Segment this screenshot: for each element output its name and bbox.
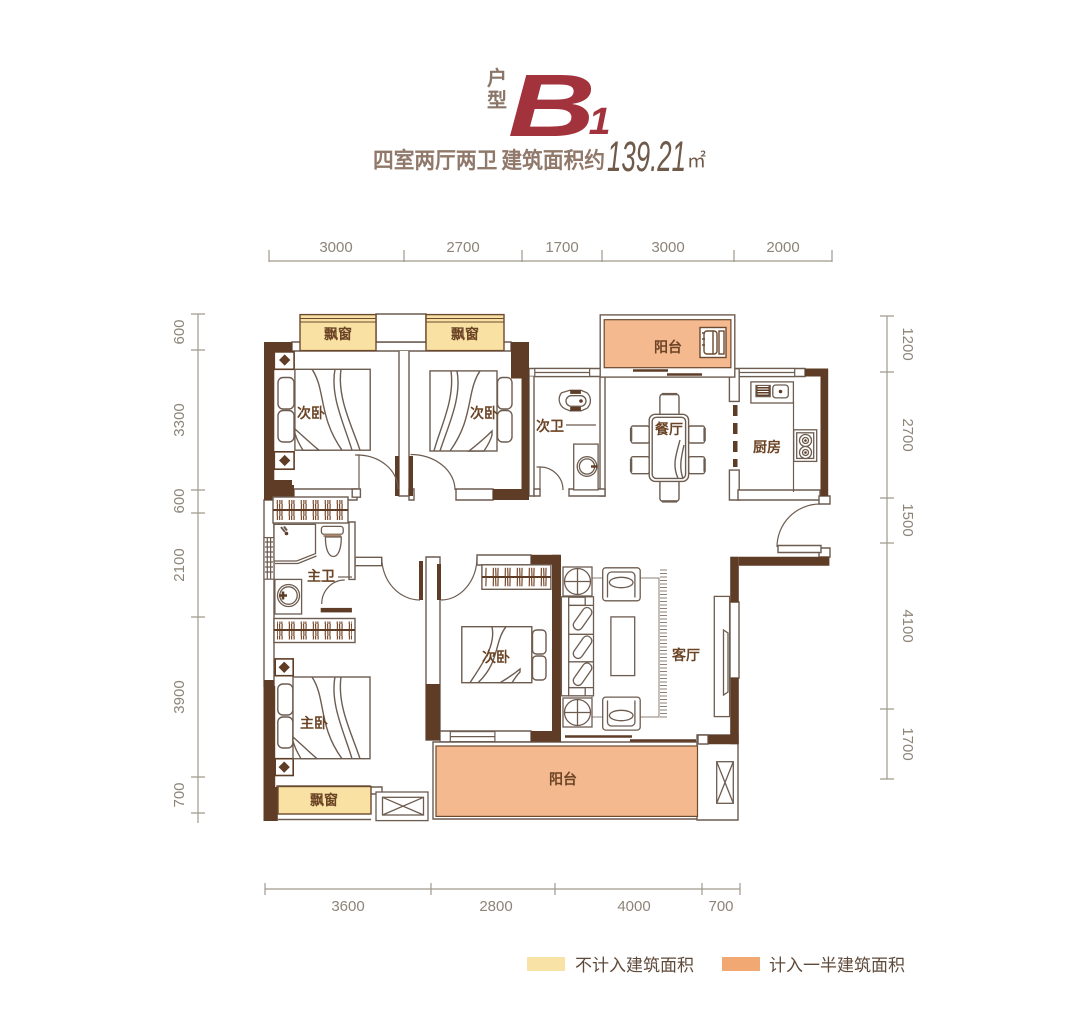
svg-text:型: 型 (487, 89, 507, 112)
svg-text:2700: 2700 (899, 418, 916, 451)
svg-text:次卧: 次卧 (470, 405, 498, 421)
svg-text:计入一半建筑面积: 计入一半建筑面积 (769, 956, 905, 975)
svg-text:2700: 2700 (446, 239, 479, 256)
svg-text:1700: 1700 (899, 727, 916, 760)
svg-text:3000: 3000 (651, 239, 684, 256)
svg-text:2800: 2800 (479, 898, 512, 915)
svg-text:1700: 1700 (545, 239, 578, 256)
svg-text:餐厅: 餐厅 (654, 421, 683, 437)
svg-text:户: 户 (487, 66, 507, 90)
svg-text:次卧: 次卧 (297, 405, 325, 421)
svg-text:飘窗: 飘窗 (324, 326, 352, 342)
svg-text:2100: 2100 (171, 548, 188, 581)
svg-text:飘窗: 飘窗 (451, 326, 479, 342)
svg-text:阳台: 阳台 (654, 339, 682, 355)
svg-text:3300: 3300 (171, 403, 188, 436)
svg-text:700: 700 (708, 898, 733, 915)
svg-text:主卧: 主卧 (300, 715, 328, 731)
svg-text:厨房: 厨房 (753, 439, 781, 455)
svg-text:㎡: ㎡ (687, 149, 706, 172)
svg-text:600: 600 (171, 319, 188, 344)
svg-text:B: B (508, 57, 596, 155)
svg-text:次卧: 次卧 (482, 649, 510, 665)
svg-text:飘窗: 飘窗 (310, 792, 338, 808)
svg-text:4100: 4100 (899, 609, 916, 642)
svg-text:1200: 1200 (899, 327, 916, 360)
svg-text:主卫: 主卫 (307, 568, 335, 584)
svg-text:四室两厅两卫 建筑面积约: 四室两厅两卫 建筑面积约 (373, 148, 605, 173)
svg-text:阳台: 阳台 (549, 771, 577, 787)
svg-text:139.21: 139.21 (607, 133, 686, 181)
svg-text:2000: 2000 (766, 239, 799, 256)
svg-text:不计入建筑面积: 不计入建筑面积 (575, 956, 694, 975)
svg-text:3000: 3000 (319, 239, 352, 256)
svg-text:4000: 4000 (617, 898, 650, 915)
svg-text:客厅: 客厅 (671, 647, 700, 663)
svg-text:600: 600 (171, 488, 188, 513)
svg-text:700: 700 (171, 782, 188, 807)
svg-text:次卫: 次卫 (536, 418, 564, 434)
svg-text:3900: 3900 (171, 680, 188, 713)
svg-text:3600: 3600 (331, 898, 364, 915)
svg-text:1500: 1500 (899, 503, 916, 536)
